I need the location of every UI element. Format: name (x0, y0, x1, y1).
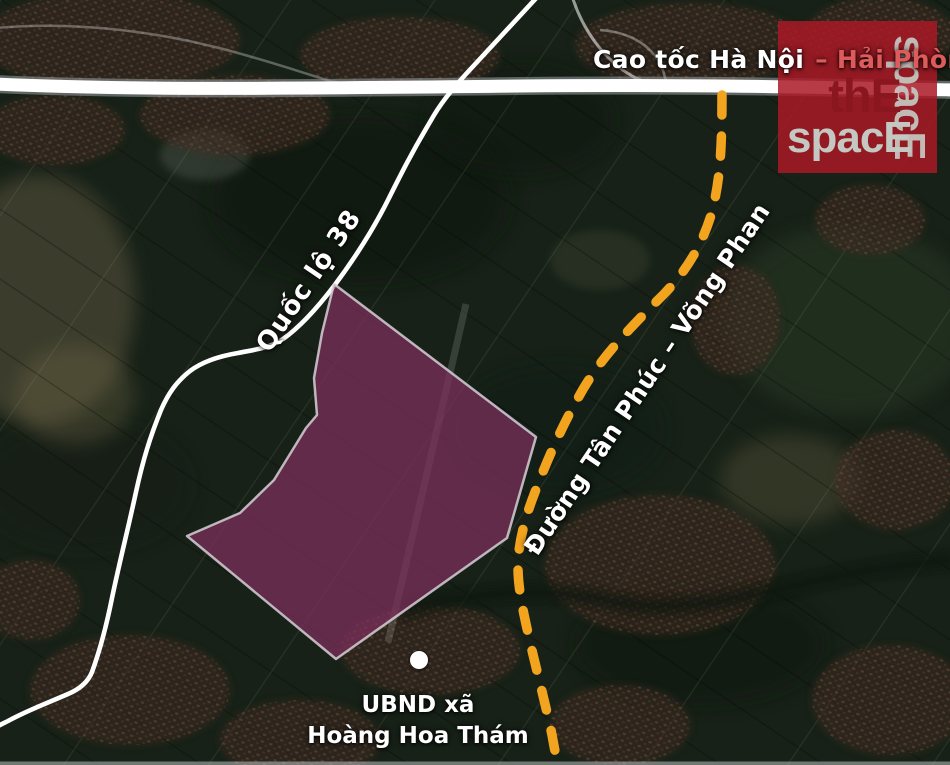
poi-marker (408, 650, 430, 672)
poi-marker-dot (410, 651, 428, 669)
map-viewport: spacE thE spacE Cao tốc Hà Nội – Hải Phò… (0, 0, 950, 765)
watermark-line1: thE (828, 72, 901, 119)
bottom-road-sliver (0, 762, 950, 765)
watermark-logo: spacE thE spacE (778, 21, 937, 173)
watermark-line2: spacE (787, 116, 912, 160)
